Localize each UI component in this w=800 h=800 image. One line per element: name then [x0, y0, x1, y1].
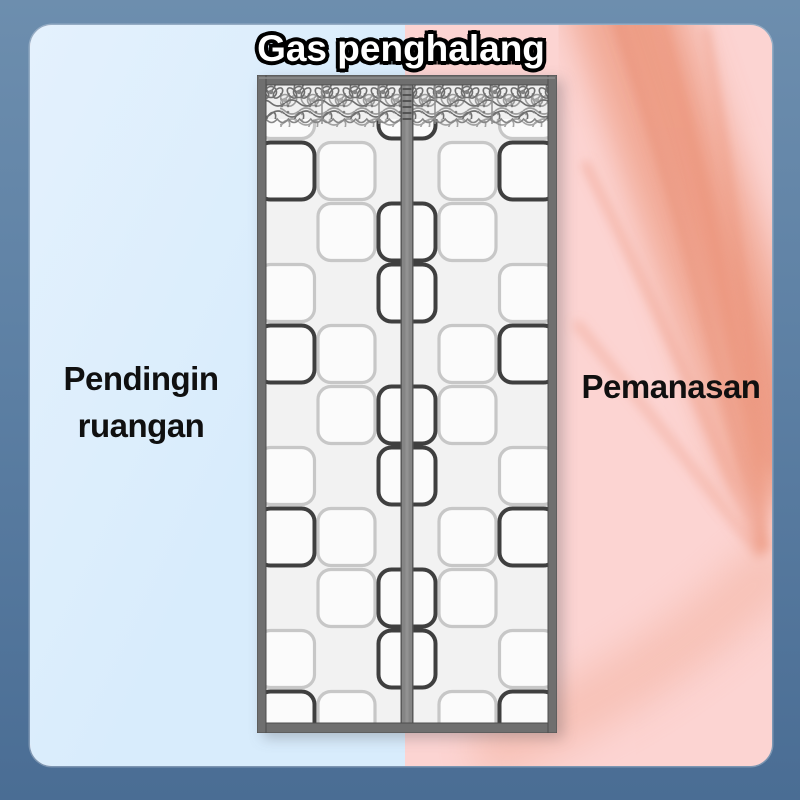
- warm-side-label: Pemanasan: [571, 363, 771, 410]
- cool-side-label-line2: ruangan: [46, 402, 236, 449]
- door-curtain-graphic: [257, 75, 557, 733]
- cool-side-label-line1: Pendingin: [46, 355, 236, 402]
- info-card: Pendingin ruangan Pemanasan: [30, 25, 772, 766]
- barrier-title: Gas penghalang: [257, 28, 545, 70]
- product-canvas: Pendingin ruangan Pemanasan: [0, 0, 800, 800]
- cool-side-label: Pendingin ruangan: [46, 355, 236, 449]
- curtain-magnet-strip: [401, 85, 414, 733]
